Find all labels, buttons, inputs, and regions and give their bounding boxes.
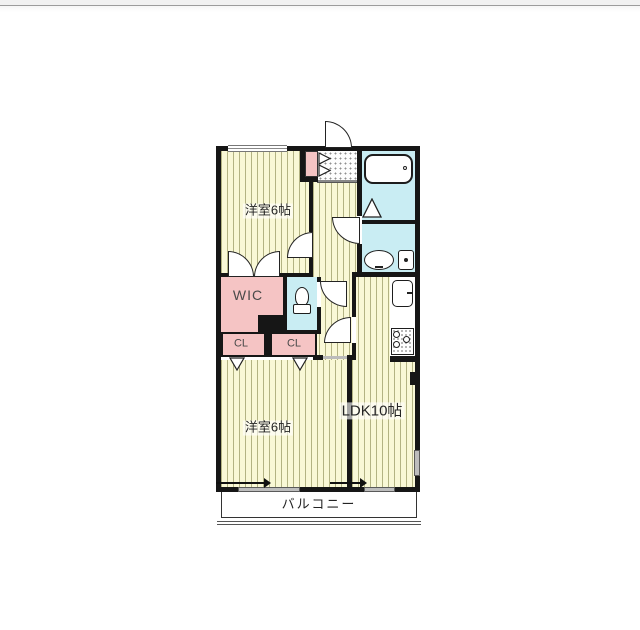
floorplan: 洋室6帖 洋室6帖 LDK10帖 WIC CL CL バルコニー — [0, 0, 640, 630]
stove-burner-icon — [393, 331, 400, 338]
entrance-door-arc — [325, 121, 352, 148]
page: { "colors": { "floor": "#f9f8d6", "strip… — [0, 0, 640, 630]
closet-left-label: CL — [232, 338, 250, 351]
closet-left-folding-door-icon — [229, 357, 245, 371]
bathtub-drain-icon — [403, 166, 407, 170]
kitchen-sink-handle-icon — [407, 292, 412, 294]
balcony-label: バルコニー — [280, 498, 359, 513]
stove-burner-icon — [393, 341, 400, 348]
window-arrowhead-ldk — [360, 478, 367, 488]
wic-label: WIC — [231, 287, 265, 303]
balcony-outer-line-2 — [217, 524, 421, 525]
bedroom-top-label: 洋室6帖 — [243, 204, 293, 219]
washbasin-tap-icon — [375, 266, 383, 268]
gap-ldk-door — [352, 317, 356, 343]
window-arrow-ldk — [330, 482, 362, 484]
ldk-label: LDK10帖 — [340, 402, 405, 419]
bedroom-bottom-label: 洋室6帖 — [243, 421, 293, 436]
shoe-cabinet-folding-door-icon — [318, 152, 332, 177]
washing-machine-dot-icon — [404, 258, 408, 262]
closet-right-folding-door-icon — [292, 357, 308, 371]
stove-burner-icon — [403, 336, 410, 343]
balcony-outer-line-1 — [217, 521, 421, 522]
bathroom-folding-door-icon — [362, 198, 382, 218]
outer-wall — [216, 146, 420, 492]
window-top — [228, 145, 287, 152]
window-right-wall — [414, 450, 420, 476]
window-arrowhead-bed2 — [264, 478, 271, 488]
window-arrow-bed2 — [216, 482, 266, 484]
toilet-tank-icon — [293, 304, 311, 314]
closet-right-label: CL — [285, 338, 303, 351]
